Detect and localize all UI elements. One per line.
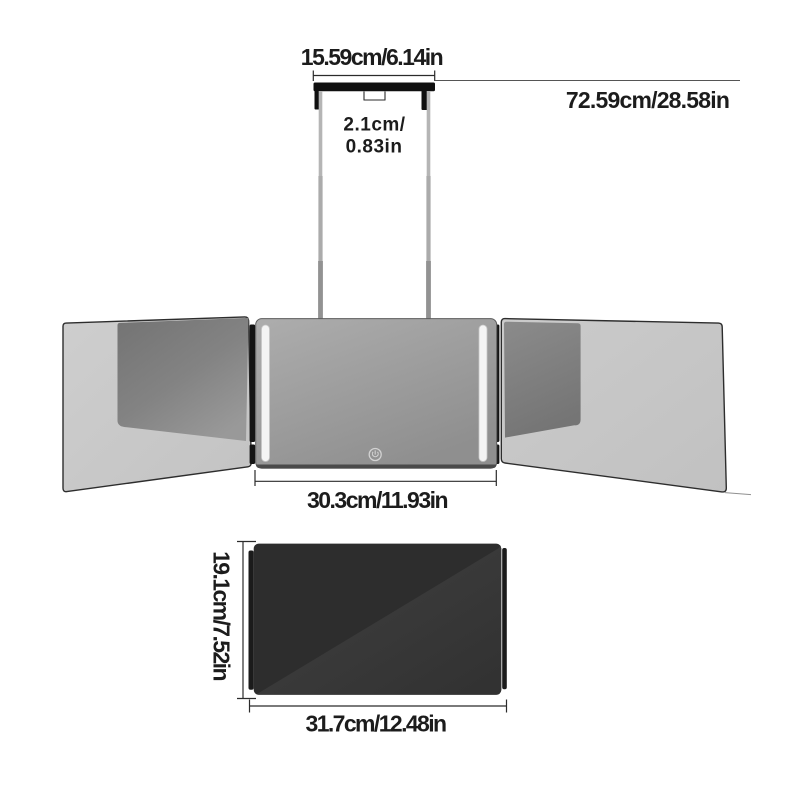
svg-text:2.1cm/: 2.1cm/ (343, 115, 405, 136)
svg-text:30.3cm/11.93in: 30.3cm/11.93in (307, 487, 448, 513)
svg-text:31.7cm/12.48in: 31.7cm/12.48in (306, 711, 447, 737)
svg-text:0.83in: 0.83in (346, 137, 403, 158)
svg-text:15.59cm/6.14in: 15.59cm/6.14in (301, 44, 443, 70)
svg-text:19.1cm/7.52in: 19.1cm/7.52in (209, 551, 235, 680)
svg-text:72.59cm/28.58in: 72.59cm/28.58in (566, 87, 729, 113)
